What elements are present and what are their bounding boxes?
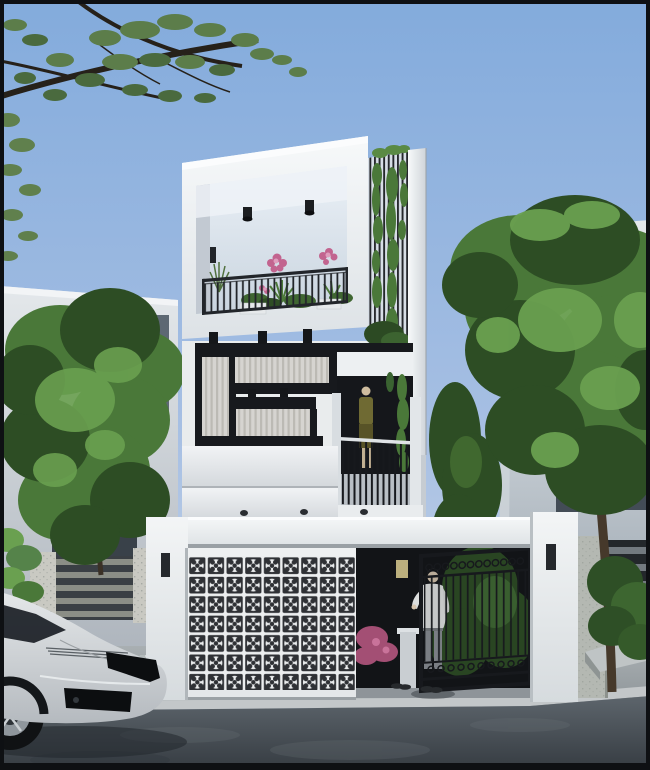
terrace-wall-sconce (210, 247, 216, 263)
balcony-railing (340, 437, 410, 508)
vine-screen (364, 145, 411, 352)
fence-sconce-left (161, 553, 170, 577)
boundary-fence (146, 512, 650, 702)
entry-pedestal (400, 632, 416, 690)
pillar-sconce (546, 544, 556, 570)
lit-window (396, 560, 408, 578)
top-terrace (182, 136, 368, 339)
scene-canvas (0, 0, 650, 770)
breeze-block-gate (188, 548, 356, 700)
architectural-render (0, 0, 650, 770)
right-entry-pillar (530, 512, 578, 702)
balcony-recess (332, 343, 423, 523)
middle-floor-windows (195, 329, 337, 448)
fence-beam (146, 517, 578, 548)
main-house (182, 136, 426, 523)
iron-gate (421, 548, 530, 691)
